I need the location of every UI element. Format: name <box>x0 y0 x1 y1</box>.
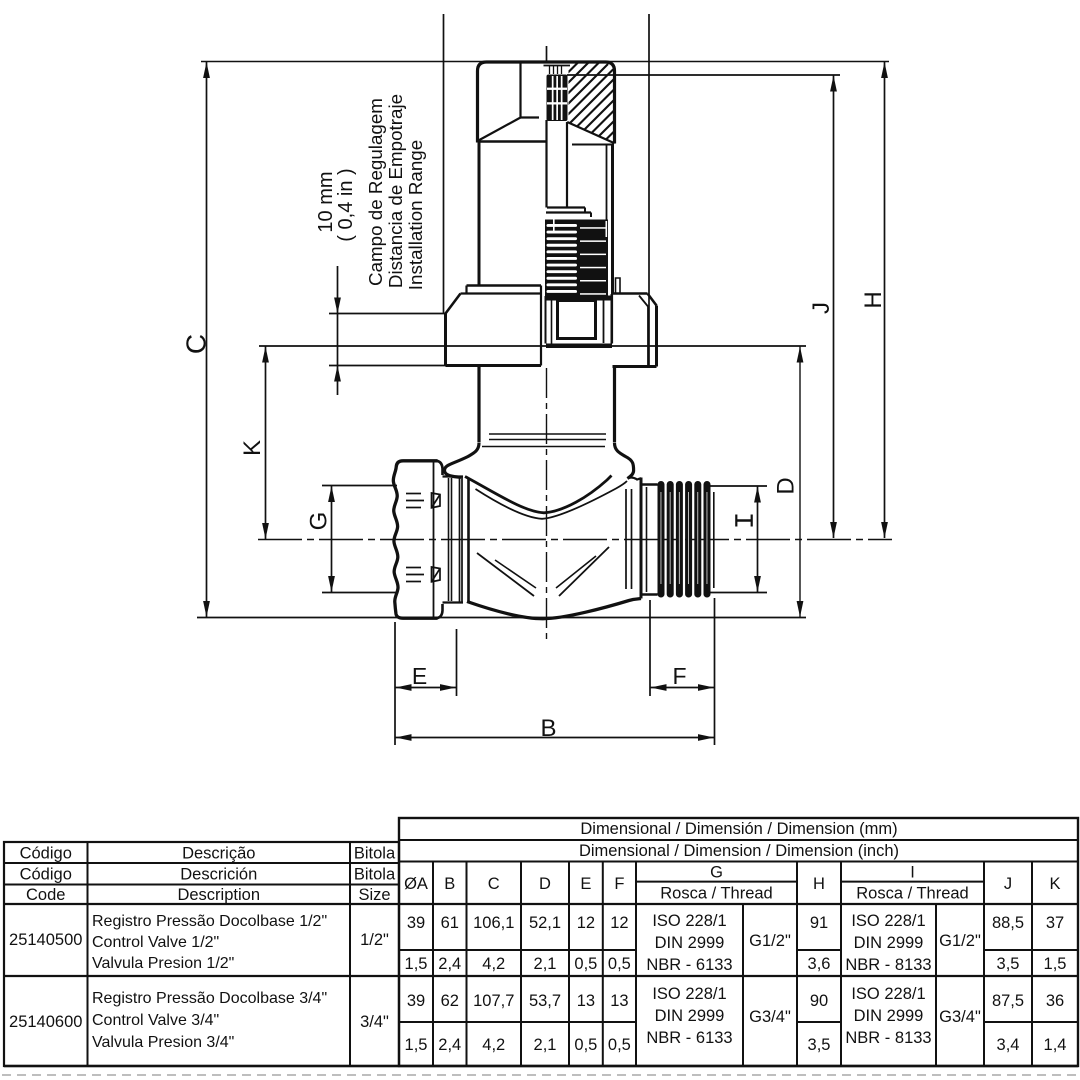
svg-text:3/4": 3/4" <box>360 1013 389 1031</box>
svg-text:90: 90 <box>810 992 828 1010</box>
svg-text:3,5: 3,5 <box>997 955 1020 973</box>
svg-text:Descrição: Descrição <box>182 845 255 863</box>
svg-text:13: 13 <box>610 992 628 1010</box>
svg-text:Distancia de Empotraje: Distancia de Empotraje <box>385 94 406 288</box>
svg-text:61: 61 <box>441 914 459 932</box>
svg-text:Rosca / Thread: Rosca / Thread <box>660 885 773 903</box>
svg-text:H: H <box>813 875 825 893</box>
svg-text:ISO 228/1: ISO 228/1 <box>652 985 726 1003</box>
svg-text:12: 12 <box>577 914 595 932</box>
svg-text:Registro Pressão Docolbase 3/4: Registro Pressão Docolbase 3/4" <box>92 990 327 1007</box>
svg-text:Código: Código <box>20 866 72 884</box>
svg-text:0,5: 0,5 <box>574 1036 597 1054</box>
svg-text:4,2: 4,2 <box>482 955 505 973</box>
svg-text:37: 37 <box>1046 914 1064 932</box>
svg-text:F: F <box>614 875 624 893</box>
svg-text:Description: Description <box>177 886 260 904</box>
svg-text:DIN 2999: DIN 2999 <box>854 934 924 952</box>
svg-text:C: C <box>488 875 500 893</box>
svg-text:1,5: 1,5 <box>405 955 428 973</box>
svg-text:NBR - 6133: NBR - 6133 <box>646 1029 732 1047</box>
svg-text:3,4: 3,4 <box>997 1036 1020 1054</box>
svg-text:25140500: 25140500 <box>9 931 82 949</box>
svg-text:Valvula Presion 3/4": Valvula Presion 3/4" <box>92 1034 234 1051</box>
svg-text:Control Valve 3/4": Control Valve 3/4" <box>92 1012 219 1029</box>
svg-text:2,4: 2,4 <box>438 955 461 973</box>
svg-text:Registro Pressão Docolbase 1/2: Registro Pressão Docolbase 1/2" <box>92 913 327 930</box>
svg-text:G3/4": G3/4" <box>939 1008 981 1026</box>
svg-text:C: C <box>181 334 212 354</box>
svg-text:39: 39 <box>407 992 425 1010</box>
svg-text:1,5: 1,5 <box>1044 955 1067 973</box>
svg-text:Control Valve 1/2": Control Valve 1/2" <box>92 934 219 951</box>
svg-text:J: J <box>1004 875 1012 893</box>
svg-text:( 0,4 in ): ( 0,4 in ) <box>335 168 357 241</box>
svg-text:J: J <box>808 302 835 314</box>
svg-text:NBR - 6133: NBR - 6133 <box>646 956 732 974</box>
svg-text:G: G <box>306 512 333 531</box>
svg-text:0,5: 0,5 <box>574 955 597 973</box>
svg-text:ISO 228/1: ISO 228/1 <box>652 912 726 930</box>
svg-text:39: 39 <box>407 914 425 932</box>
svg-text:ISO 228/1: ISO 228/1 <box>851 912 925 930</box>
svg-text:91: 91 <box>810 914 828 932</box>
svg-text:DIN 2999: DIN 2999 <box>655 1007 725 1025</box>
svg-text:F: F <box>672 663 686 689</box>
svg-text:2,1: 2,1 <box>534 1036 557 1054</box>
svg-text:3,5: 3,5 <box>808 1036 831 1054</box>
svg-text:G3/4": G3/4" <box>749 1008 791 1026</box>
svg-text:12: 12 <box>610 914 628 932</box>
svg-text:107,7: 107,7 <box>473 992 514 1010</box>
svg-text:Bitola: Bitola <box>354 866 396 884</box>
svg-text:Valvula Presion 1/2": Valvula Presion 1/2" <box>92 955 234 972</box>
svg-text:D: D <box>773 477 800 494</box>
svg-text:Size: Size <box>358 886 390 904</box>
svg-text:Campo de Regulagem: Campo de Regulagem <box>365 98 386 286</box>
svg-text:I: I <box>910 864 915 882</box>
svg-text:Rosca / Thread: Rosca / Thread <box>856 885 969 903</box>
svg-text:ØA: ØA <box>404 875 428 893</box>
svg-text:G: G <box>710 864 723 882</box>
svg-text:Bitola: Bitola <box>354 845 396 863</box>
svg-text:G1/2": G1/2" <box>749 932 791 950</box>
svg-text:Dimensional / Dimension / Dime: Dimensional / Dimension / Dimension (inc… <box>579 842 899 860</box>
svg-text:62: 62 <box>441 992 459 1010</box>
svg-text:DIN 2999: DIN 2999 <box>655 934 725 952</box>
svg-text:0,5: 0,5 <box>608 955 631 973</box>
svg-text:53,7: 53,7 <box>529 992 561 1010</box>
svg-text:Code: Code <box>26 886 65 904</box>
svg-text:E: E <box>580 875 591 893</box>
svg-text:H: H <box>860 291 887 308</box>
svg-text:1,4: 1,4 <box>1044 1036 1067 1054</box>
svg-text:106,1: 106,1 <box>473 914 514 932</box>
svg-text:52,1: 52,1 <box>529 914 561 932</box>
svg-text:10 mm: 10 mm <box>315 171 337 232</box>
svg-text:36: 36 <box>1046 992 1064 1010</box>
svg-text:Descrición: Descrición <box>180 866 257 884</box>
svg-text:87,5: 87,5 <box>992 992 1024 1010</box>
svg-text:13: 13 <box>577 992 595 1010</box>
svg-text:G1/2": G1/2" <box>939 932 981 950</box>
svg-text:1/2": 1/2" <box>360 931 389 949</box>
svg-text:K: K <box>239 440 266 456</box>
svg-text:NBR - 8133: NBR - 8133 <box>845 1029 931 1047</box>
svg-text:B: B <box>444 875 455 893</box>
svg-text:B: B <box>540 715 556 742</box>
svg-text:Installation Range: Installation Range <box>405 140 426 290</box>
svg-text:2,4: 2,4 <box>438 1036 461 1054</box>
svg-text:ISO 228/1: ISO 228/1 <box>851 985 925 1003</box>
svg-text:K: K <box>1049 875 1060 893</box>
svg-text:Dimensional / Dimensión / Dime: Dimensional / Dimensión / Dimension (mm) <box>580 820 897 838</box>
svg-text:2,1: 2,1 <box>534 955 557 973</box>
svg-text:25140600: 25140600 <box>9 1013 82 1031</box>
svg-text:88,5: 88,5 <box>992 914 1024 932</box>
svg-text:NBR - 8133: NBR - 8133 <box>845 956 931 974</box>
svg-text:0,5: 0,5 <box>608 1036 631 1054</box>
svg-text:1,5: 1,5 <box>405 1036 428 1054</box>
svg-text:DIN 2999: DIN 2999 <box>854 1007 924 1025</box>
svg-text:Código: Código <box>20 845 72 863</box>
svg-text:4,2: 4,2 <box>482 1036 505 1054</box>
svg-text:D: D <box>539 875 551 893</box>
svg-text:E: E <box>412 663 427 689</box>
svg-text:3,6: 3,6 <box>808 955 831 973</box>
